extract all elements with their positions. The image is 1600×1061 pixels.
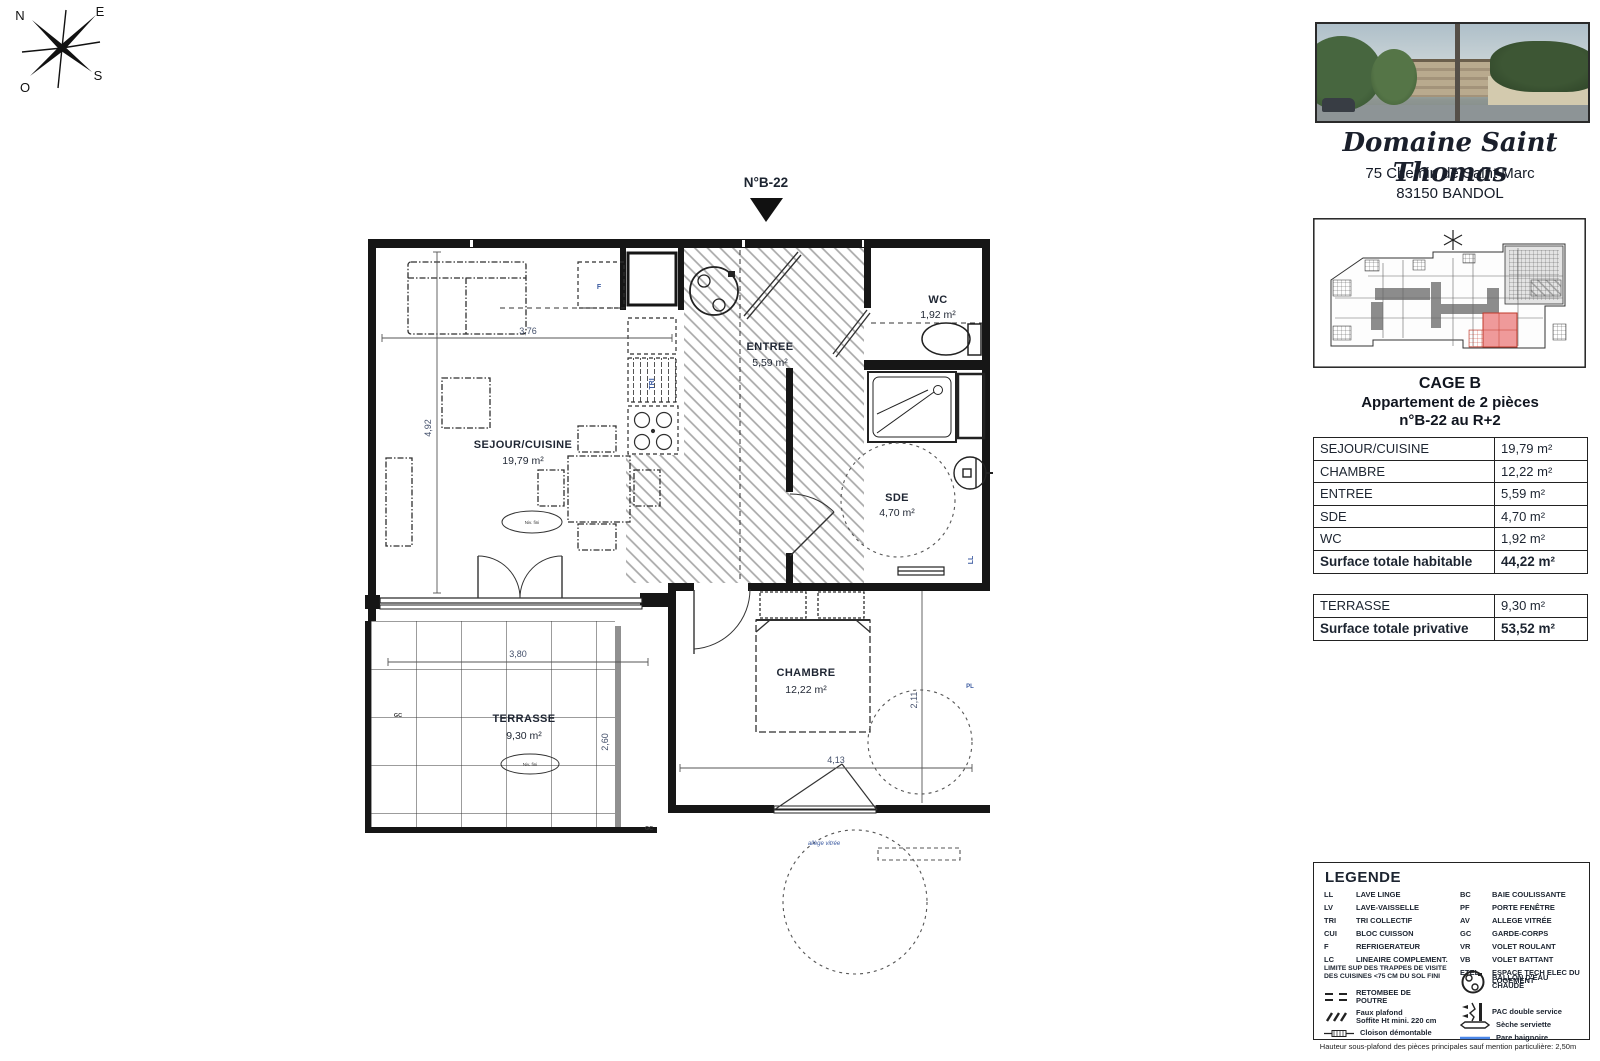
legend-seche: Sèche serviette xyxy=(1460,1021,1551,1029)
water-heater-legend-icon xyxy=(1460,969,1486,995)
dim-sejour-width: 3,76 xyxy=(519,326,537,336)
legend: LEGENDE LLLAVE LINGE LVLAVE-VAISSELLE TR… xyxy=(1313,862,1590,1040)
chambre-area: 12,22 m² xyxy=(785,684,827,696)
ceiling-height-note: Hauteur sous-plafond des pièces principa… xyxy=(1280,1042,1600,1051)
row-value: 44,22 m² xyxy=(1494,551,1587,574)
dim-terrasse-height: 2,60 xyxy=(600,733,610,751)
address-line-2: 83150 BANDOL xyxy=(1285,185,1600,202)
legend-ballon: BALLON D'EAU CHAUDE xyxy=(1460,969,1576,995)
row-label: Surface totale habitable xyxy=(1314,554,1494,569)
shower-icon xyxy=(868,372,956,442)
lave-linge-label: LL xyxy=(968,555,975,564)
legend-label: Soffite Ht mini. 220 cm xyxy=(1356,1017,1440,1025)
fridge-label: F xyxy=(597,284,602,291)
dim-sejour-height: 4,92 xyxy=(423,419,433,437)
towel-dryer-legend-icon xyxy=(1460,1021,1490,1029)
utility-pole xyxy=(1455,24,1459,121)
legend-title: LEGENDE xyxy=(1325,869,1401,886)
row-value: 12,22 m² xyxy=(1494,461,1587,483)
etel-cabinet xyxy=(958,374,984,438)
compass-rose-icon: N E S O xyxy=(8,2,118,102)
legend-label: RETOMBEE DE POUTRE xyxy=(1356,989,1430,1006)
row-label: SEJOUR/CUISINE xyxy=(1314,441,1494,456)
floor-plan: N°B-22 xyxy=(350,160,1010,990)
faux-plafond-icon xyxy=(1324,1011,1350,1023)
dim-chambre-height: 2,11 xyxy=(909,692,919,709)
table-row: ENTREE 5,59 m² xyxy=(1314,483,1587,506)
toilet-icon xyxy=(922,323,981,355)
legend-label: BALLON D'EAU CHAUDE xyxy=(1492,974,1576,991)
compass-e: E xyxy=(96,4,105,19)
sde-name: SDE xyxy=(885,492,909,504)
towel-dryer-icon xyxy=(898,567,944,575)
terrasse-area: 9,30 m² xyxy=(506,730,542,742)
pare-baignoire-icon xyxy=(1460,1035,1490,1041)
apartment-type: Appartement de 2 pièces xyxy=(1285,394,1600,411)
tri-label: TRI xyxy=(649,378,656,389)
row-value: 9,30 m² xyxy=(1494,595,1587,617)
unit-marker-label: N°B-22 xyxy=(744,175,788,190)
table-row: SDE 4,70 m² xyxy=(1314,506,1587,529)
wc-area: 1,92 m² xyxy=(920,309,956,321)
private-areas-table: TERRASSE 9,30 m² Surface totale privativ… xyxy=(1313,594,1588,641)
row-value: 4,70 m² xyxy=(1494,506,1587,528)
areas-table: SEJOUR/CUISINE 19,79 m² CHAMBRE 12,22 m²… xyxy=(1313,437,1588,574)
level-label-terrasse: Niv. fini xyxy=(523,762,537,767)
table-row: WC 1,92 m² xyxy=(1314,528,1587,551)
level-label-sejour: Niv. fini xyxy=(525,520,539,525)
row-label: TERRASSE xyxy=(1314,598,1494,613)
pac-icon xyxy=(1460,1001,1486,1023)
garde-corps-label-1: GC xyxy=(394,713,402,719)
garde-corps-label-2: GC xyxy=(645,826,653,832)
row-value: 19,79 m² xyxy=(1494,438,1587,460)
table-row: SEJOUR/CUISINE 19,79 m² xyxy=(1314,438,1587,461)
row-label: Surface totale privative xyxy=(1314,621,1494,636)
sofa xyxy=(408,262,526,334)
legend-note: LIMITE SUP DES TRAPPES DE VISITE DES CUI… xyxy=(1324,965,1452,981)
entree-area: 5,59 m² xyxy=(752,357,788,369)
row-label: WC xyxy=(1314,531,1494,546)
legend-pare: Pare baignoire xyxy=(1460,1034,1548,1042)
sejour-name: SEJOUR/CUISINE xyxy=(474,439,573,451)
row-label: CHAMBRE xyxy=(1314,464,1494,479)
legend-label: PAC double service xyxy=(1492,1008,1562,1016)
bed xyxy=(756,592,870,732)
legend-faux-plafond: Faux plafond Soffite Ht mini. 220 cm xyxy=(1324,1009,1440,1026)
terrace-rail xyxy=(615,626,621,827)
legend-label: Sèche serviette xyxy=(1496,1021,1551,1029)
compass-n: N xyxy=(15,8,24,23)
address-line-1: 75 Chemin de Saint Marc xyxy=(1285,165,1600,182)
site-key-plan xyxy=(1313,218,1586,368)
row-value: 53,52 m² xyxy=(1494,618,1587,641)
wc-name: WC xyxy=(928,294,947,306)
dim-chambre-width: 4,13 xyxy=(827,755,845,765)
cage-label: CAGE B xyxy=(1285,375,1600,393)
compass-o: O xyxy=(20,80,30,95)
retombee-icon xyxy=(1324,992,1350,1002)
unit-marker-arrow-icon xyxy=(750,198,783,222)
sde-area: 4,70 m² xyxy=(879,507,915,519)
row-label: ENTREE xyxy=(1314,486,1494,501)
entree-name: ENTREE xyxy=(746,341,793,353)
chambre-name: CHAMBRE xyxy=(776,667,835,679)
placard-label: PL xyxy=(966,684,974,690)
dim-terrasse-width: 3,80 xyxy=(509,649,527,659)
unit-marker: N°B-22 xyxy=(744,175,788,222)
legend-cloison: Cloison démontable xyxy=(1324,1029,1432,1037)
legend-label: Cloison démontable xyxy=(1360,1029,1432,1037)
sejour-area: 19,79 m² xyxy=(502,455,544,467)
total-habitable-row: Surface totale habitable 44,22 m² xyxy=(1314,551,1587,574)
legend-label: Pare baignoire xyxy=(1496,1034,1548,1042)
row-value: 5,59 m² xyxy=(1494,483,1587,505)
row-value: 1,92 m² xyxy=(1494,528,1587,550)
site-photo xyxy=(1315,22,1590,123)
legend-left-column: LLLAVE LINGE LVLAVE-VAISSELLE TRITRI COL… xyxy=(1324,891,1450,969)
car xyxy=(1322,98,1355,113)
total-privative-row: Surface totale privative 53,52 m² xyxy=(1314,618,1587,641)
table-row: CHAMBRE 12,22 m² xyxy=(1314,461,1587,484)
hedge-right xyxy=(1490,41,1590,91)
hob-icon xyxy=(628,406,678,454)
floor-plan-sheet: { "compass": {"n":"N","e":"E","s":"S","o… xyxy=(0,0,1600,1061)
row-label: SDE xyxy=(1314,509,1494,524)
cloison-icon xyxy=(1324,1030,1354,1037)
terrasse-name: TERRASSE xyxy=(492,713,555,725)
legend-retombee: RETOMBEE DE POUTRE xyxy=(1324,989,1430,1006)
apartment-number: n°B-22 au R+2 xyxy=(1285,412,1600,429)
tv-unit xyxy=(386,458,412,546)
coffee-table xyxy=(442,378,490,428)
allege-vitree-label: allège vitrée xyxy=(808,841,841,847)
compass-s: S xyxy=(94,68,103,83)
terrasse-row: TERRASSE 9,30 m² xyxy=(1314,595,1587,618)
